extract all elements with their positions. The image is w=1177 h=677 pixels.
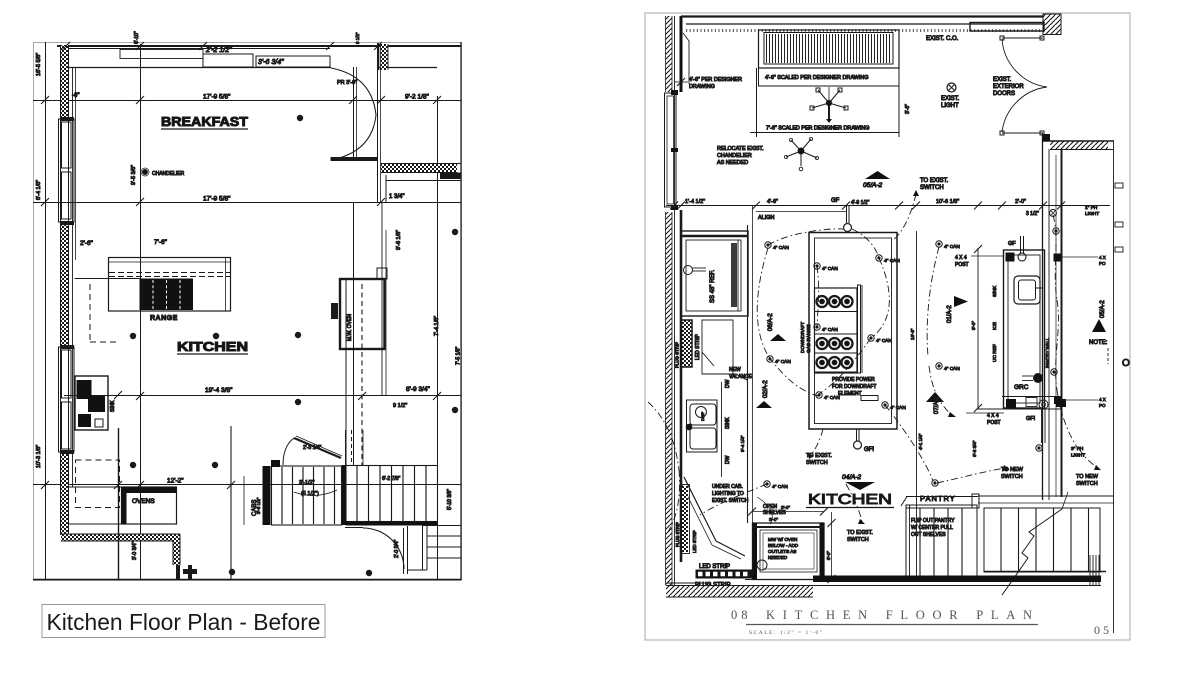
svg-text:7'-4 1/8": 7'-4 1/8" [434, 316, 440, 336]
svg-text:PO: PO [1099, 403, 1106, 408]
svg-text:4 X: 4 X [1099, 255, 1106, 260]
svg-text:02/A-2: 02/A-2 [763, 380, 769, 398]
svg-text:TO NEW: TO NEW [1076, 474, 1099, 480]
svg-text:8'-0": 8'-0" [971, 321, 976, 330]
svg-text:RELOCATE EXIST.: RELOCATE EXIST. [717, 146, 764, 152]
svg-text:4" CAN: 4" CAN [775, 359, 791, 365]
svg-text:4'-6" PER DESIGNER: 4'-6" PER DESIGNER [689, 77, 742, 83]
svg-text:2'-0 3/4": 2'-0 3/4" [394, 539, 400, 558]
svg-text:4" CAN: 4" CAN [824, 395, 840, 401]
svg-text:NOTE:: NOTE: [1089, 340, 1108, 346]
svg-text:10'-6 1/8": 10'-6 1/8" [936, 199, 959, 205]
svg-text:EXIST.: EXIST. [941, 96, 960, 102]
svg-text:FLIP OUT PANTRY: FLIP OUT PANTRY [911, 518, 955, 524]
svg-text:GRC: GRC [1014, 384, 1029, 391]
svg-text:17'-9 5/8": 17'-9 5/8" [203, 196, 231, 203]
svg-text:7'-5 1/8": 7'-5 1/8" [456, 346, 462, 365]
svg-text:3'-6": 3'-6" [905, 104, 911, 114]
svg-text:16'-5 5/8": 16'-5 5/8" [36, 53, 42, 76]
svg-text:3" PH: 3" PH [1071, 446, 1084, 452]
svg-text:8'-9 3/4": 8'-9 3/4" [406, 386, 430, 393]
svg-text:PANTRY WALL: PANTRY WALL [1045, 337, 1050, 368]
svg-text:4" CAN: 4" CAN [884, 258, 900, 264]
svg-text:TO EXIST.: TO EXIST. [847, 530, 873, 536]
svg-text:4'-6": 4'-6" [767, 199, 778, 205]
svg-text:6'-10": 6'-10" [134, 31, 140, 44]
svg-text:4 X 4: 4 X 4 [987, 413, 999, 419]
svg-text:4" CAN: 4" CAN [890, 405, 906, 411]
svg-text:KITCHEN: KITCHEN [808, 492, 892, 508]
svg-text:GFI: GFI [864, 447, 874, 453]
svg-text:KITCHEN: KITCHEN [177, 339, 248, 354]
svg-text:PANTRY: PANTRY [920, 494, 956, 503]
svg-text:AS NEEDED: AS NEEDED [717, 160, 748, 166]
svg-text:CHANDELIER: CHANDELIER [717, 153, 752, 159]
svg-text:6'-8 3/4": 6'-8 3/4" [972, 440, 977, 457]
svg-text:DISP: DISP [700, 411, 705, 421]
svg-text:RANGE: RANGE [150, 315, 178, 322]
svg-text:SINK: SINK [110, 400, 116, 412]
svg-text:4" CAN: 4" CAN [772, 484, 788, 490]
svg-text:OUTLETS AS: OUTLETS AS [768, 549, 796, 554]
svg-text:8'-4 1/8": 8'-4 1/8" [36, 180, 42, 200]
svg-text:SWITCH: SWITCH [1076, 481, 1098, 487]
svg-text:POST: POST [955, 262, 969, 268]
svg-text:9 1/2": 9 1/2" [393, 403, 407, 409]
svg-text:16'-6": 16'-6" [910, 328, 915, 340]
svg-text:UC REF: UC REF [992, 344, 998, 362]
svg-text:9'-4 1/4": 9'-4 1/4" [740, 435, 745, 452]
svg-text:DRAWING: DRAWING [689, 84, 715, 90]
svg-text:TO NEW: TO NEW [1001, 467, 1024, 473]
svg-text:VALANCE: VALANCE [729, 374, 753, 380]
svg-text:05: 05 [1094, 623, 1112, 637]
svg-text:4" CAN: 4" CAN [822, 266, 838, 272]
svg-text:EXIST. SWITCH: EXIST. SWITCH [712, 498, 749, 504]
svg-text:SWITCH: SWITCH [806, 460, 828, 466]
svg-text:GF: GF [831, 198, 840, 204]
svg-text:ALIGN: ALIGN [758, 215, 775, 221]
svg-text:05/A-2: 05/A-2 [863, 182, 883, 189]
svg-text:3'-0": 3'-0" [826, 551, 831, 560]
svg-text:LIGHT: LIGHT [1071, 453, 1085, 459]
svg-text:Kitchen Floor Plan - Before: Kitchen Floor Plan - Before [47, 609, 321, 635]
svg-text:17'-9 5/8": 17'-9 5/8" [203, 94, 231, 101]
svg-text:4" CAN: 4" CAN [944, 366, 960, 372]
svg-text:W/ CENTER PULL: W/ CENTER PULL [911, 525, 953, 531]
svg-text:2'-2 1/2": 2'-2 1/2" [205, 47, 232, 54]
svg-text:9 1/2": 9 1/2" [355, 32, 360, 44]
svg-text:3'-0": 3'-0" [781, 505, 790, 510]
svg-text:EXTERIOR: EXTERIOR [993, 84, 1024, 90]
svg-text:9'-5 3/8": 9'-5 3/8" [131, 165, 137, 185]
svg-text:2'-8 1/4": 2'-8 1/4" [303, 445, 322, 451]
svg-text:ELEMENT: ELEMENT [838, 391, 862, 397]
svg-text:PLUG STRIP: PLUG STRIP [675, 522, 680, 547]
svg-text:3'-6 3/4": 3'-6 3/4" [258, 59, 284, 66]
svg-text:9'-2 1/8": 9'-2 1/8" [405, 94, 429, 101]
svg-text:4 X 4: 4 X 4 [955, 255, 967, 261]
svg-text:FOR DOWNDRAFT: FOR DOWNDRAFT [832, 384, 876, 390]
svg-text:LED STRIP: LED STRIP [695, 333, 701, 360]
svg-text:4" CAN: 4" CAN [773, 245, 789, 251]
svg-text:7'-6" SCALED PER DESIGNER DRAW: 7'-6" SCALED PER DESIGNER DRAWING [766, 126, 869, 132]
svg-text:PR 3'-0": PR 3'-0" [337, 80, 357, 86]
svg-text:O: O [1122, 358, 1130, 369]
svg-text:4 X: 4 X [1099, 397, 1106, 402]
svg-text:3'-0 3/4": 3'-0 3/4" [132, 541, 138, 560]
svg-text:4'-9 1/2": 4'-9 1/2" [851, 200, 870, 206]
svg-text:DW: DW [725, 455, 731, 464]
svg-text:4'-1 1/4": 4'-1 1/4" [918, 433, 923, 450]
svg-text:SCALE: 1/2" = 1'-0": SCALE: 1/2" = 1'-0" [749, 630, 824, 636]
svg-text:(5 1/2"): (5 1/2") [301, 491, 319, 497]
svg-text:LIGHT: LIGHT [1085, 211, 1099, 217]
svg-text:DW: DW [725, 379, 731, 388]
svg-text:SHELVES: SHELVES [763, 510, 786, 516]
svg-text:4" CAN: 4" CAN [944, 244, 960, 250]
svg-text:LIGHT: LIGHT [941, 103, 959, 109]
svg-text:3 1/2": 3 1/2" [1026, 211, 1039, 217]
svg-text:4" CAN: 4" CAN [876, 338, 892, 344]
svg-text:07/A-2: 07/A-2 [934, 396, 940, 414]
svg-text:1 3/4": 1 3/4" [389, 194, 404, 200]
svg-text:2'-0": 2'-0" [1015, 199, 1026, 205]
svg-text:SWITCH: SWITCH [1001, 474, 1023, 480]
svg-text:-6": -6" [72, 93, 79, 99]
svg-text:TO EXIST.: TO EXIST. [920, 178, 949, 184]
svg-text:5'-10 3/8": 5'-10 3/8" [447, 489, 453, 510]
svg-text:UNDER CAB.: UNDER CAB. [712, 484, 743, 490]
svg-text:NEEDED: NEEDED [768, 555, 788, 560]
svg-text:12'-2": 12'-2" [167, 478, 184, 485]
svg-text:MW W/ OVEN: MW W/ OVEN [768, 537, 797, 542]
svg-text:LED STRIP: LED STRIP [699, 564, 730, 570]
svg-text:3'-6 1/2": 3'-6 1/2" [256, 497, 261, 514]
svg-text:08: 08 [731, 608, 752, 622]
svg-text:LIGHTING TO: LIGHTING TO [712, 491, 744, 497]
svg-text:SINK: SINK [992, 285, 998, 297]
svg-text:NEW: NEW [729, 367, 741, 373]
svg-text:PO: PO [1099, 261, 1106, 266]
svg-text:3'-0": 3'-0" [769, 517, 778, 522]
svg-text:CHANDELIER: CHANDELIER [152, 171, 185, 177]
svg-text:01/A-2: 01/A-2 [947, 305, 953, 323]
svg-text:DOORS: DOORS [993, 91, 1015, 97]
svg-text:05/A-2: 05/A-2 [1100, 300, 1106, 318]
svg-text:GF: GF [1008, 241, 1016, 247]
svg-text:04/A-2: 04/A-2 [842, 474, 862, 481]
svg-text:4'-6" SCALED PER DESIGNER DRAW: 4'-6" SCALED PER DESIGNER DRAWING [765, 75, 868, 81]
svg-text:ICE: ICE [992, 322, 998, 330]
svg-text:OVENS: OVENS [132, 498, 155, 505]
svg-text:BREAKFAST: BREAKFAST [161, 114, 248, 129]
svg-text:10'-3 1/8": 10'-3 1/8" [36, 445, 42, 468]
svg-text:4" CAN: 4" CAN [822, 327, 838, 333]
svg-text:SINK: SINK [725, 417, 731, 429]
svg-text:LED STRIP: LED STRIP [692, 530, 697, 553]
svg-text:SWITCH: SWITCH [847, 537, 869, 543]
svg-text:7'-6": 7'-6" [154, 239, 168, 246]
svg-text:SWITCH: SWITCH [920, 185, 944, 191]
svg-text:GAS RANGE: GAS RANGE [806, 324, 812, 353]
svg-text:BELOW - ADD: BELOW - ADD [768, 543, 799, 548]
svg-text:06/A-2: 06/A-2 [768, 313, 774, 331]
svg-text:EXIST. C.O.: EXIST. C.O. [926, 36, 959, 42]
svg-text:PLUG STRIP: PLUG STRIP [675, 342, 680, 368]
svg-text:3'-1/2": 3'-1/2" [299, 480, 315, 486]
svg-text:2'-6": 2'-6" [80, 240, 94, 247]
svg-text:1'-4 1/2": 1'-4 1/2" [685, 199, 705, 205]
svg-text:EXIST.: EXIST. [993, 77, 1012, 83]
svg-text:GFI: GFI [1026, 416, 1036, 422]
svg-text:1" PH: 1" PH [1085, 205, 1098, 211]
svg-text:POST: POST [987, 420, 1001, 426]
svg-text:TO EXIST.: TO EXIST. [806, 453, 832, 459]
svg-text:9'-6 1/8": 9'-6 1/8" [396, 230, 402, 250]
svg-text:19'-4 3/8": 19'-4 3/8" [205, 387, 233, 394]
svg-text:M.W. OVEN: M.W. OVEN [347, 314, 353, 341]
svg-text:PROVIDE POWER: PROVIDE POWER [832, 377, 875, 383]
svg-text:6'-2 7/8": 6'-2 7/8" [382, 476, 401, 482]
svg-text:DOWNDRAFT: DOWNDRAFT [800, 322, 806, 353]
svg-text:SS 48" REF.: SS 48" REF. [710, 270, 716, 303]
